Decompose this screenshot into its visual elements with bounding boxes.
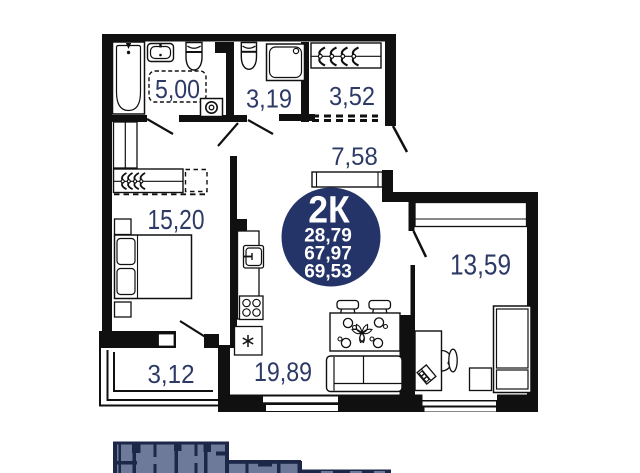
svg-text:69,53: 69,53 [304,262,352,283]
svg-text:19,89: 19,89 [254,357,312,387]
svg-text:3,19: 3,19 [246,84,292,114]
svg-text:13,59: 13,59 [450,250,511,282]
svg-text:7,58: 7,58 [331,143,378,171]
svg-text:3,12: 3,12 [148,359,195,389]
svg-text:15,20: 15,20 [148,204,205,235]
svg-text:5,00: 5,00 [155,74,200,104]
svg-text:3,52: 3,52 [329,81,375,111]
